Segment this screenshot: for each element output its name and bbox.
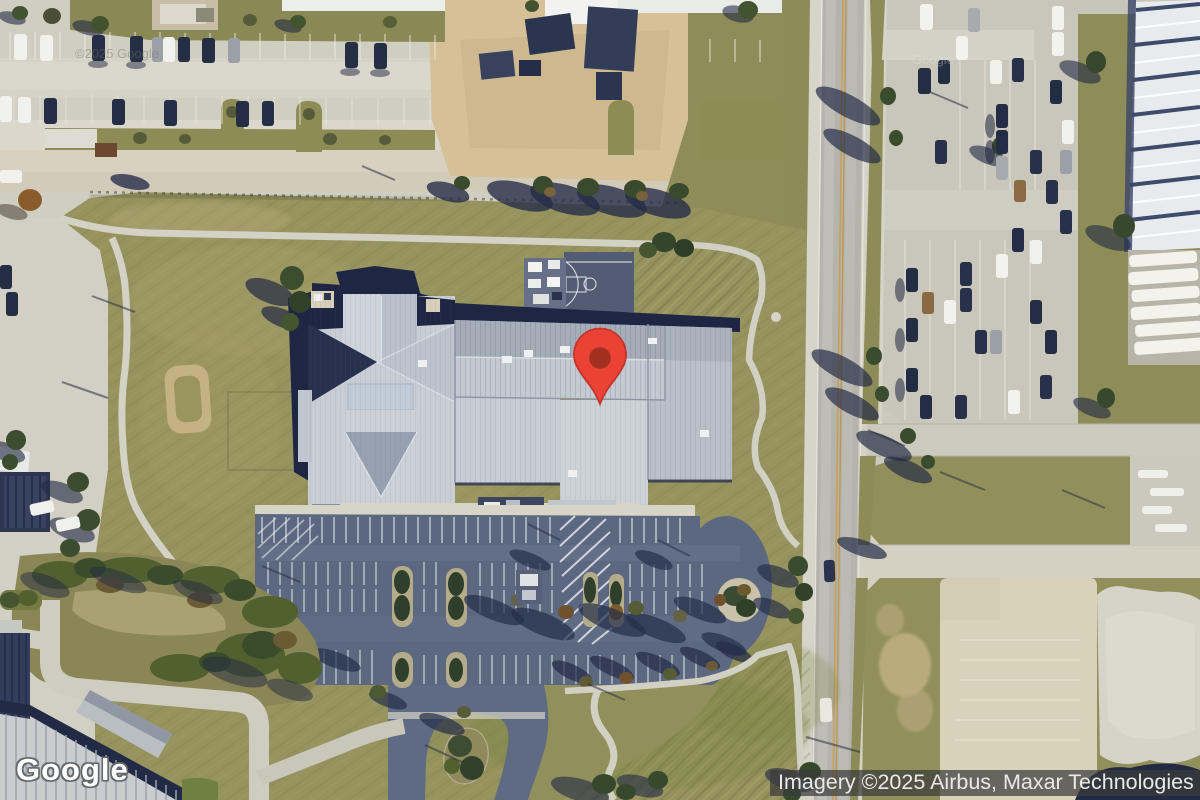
svg-text:Google: Google — [912, 52, 954, 67]
svg-text:©2025 Google: ©2025 Google — [75, 46, 159, 61]
